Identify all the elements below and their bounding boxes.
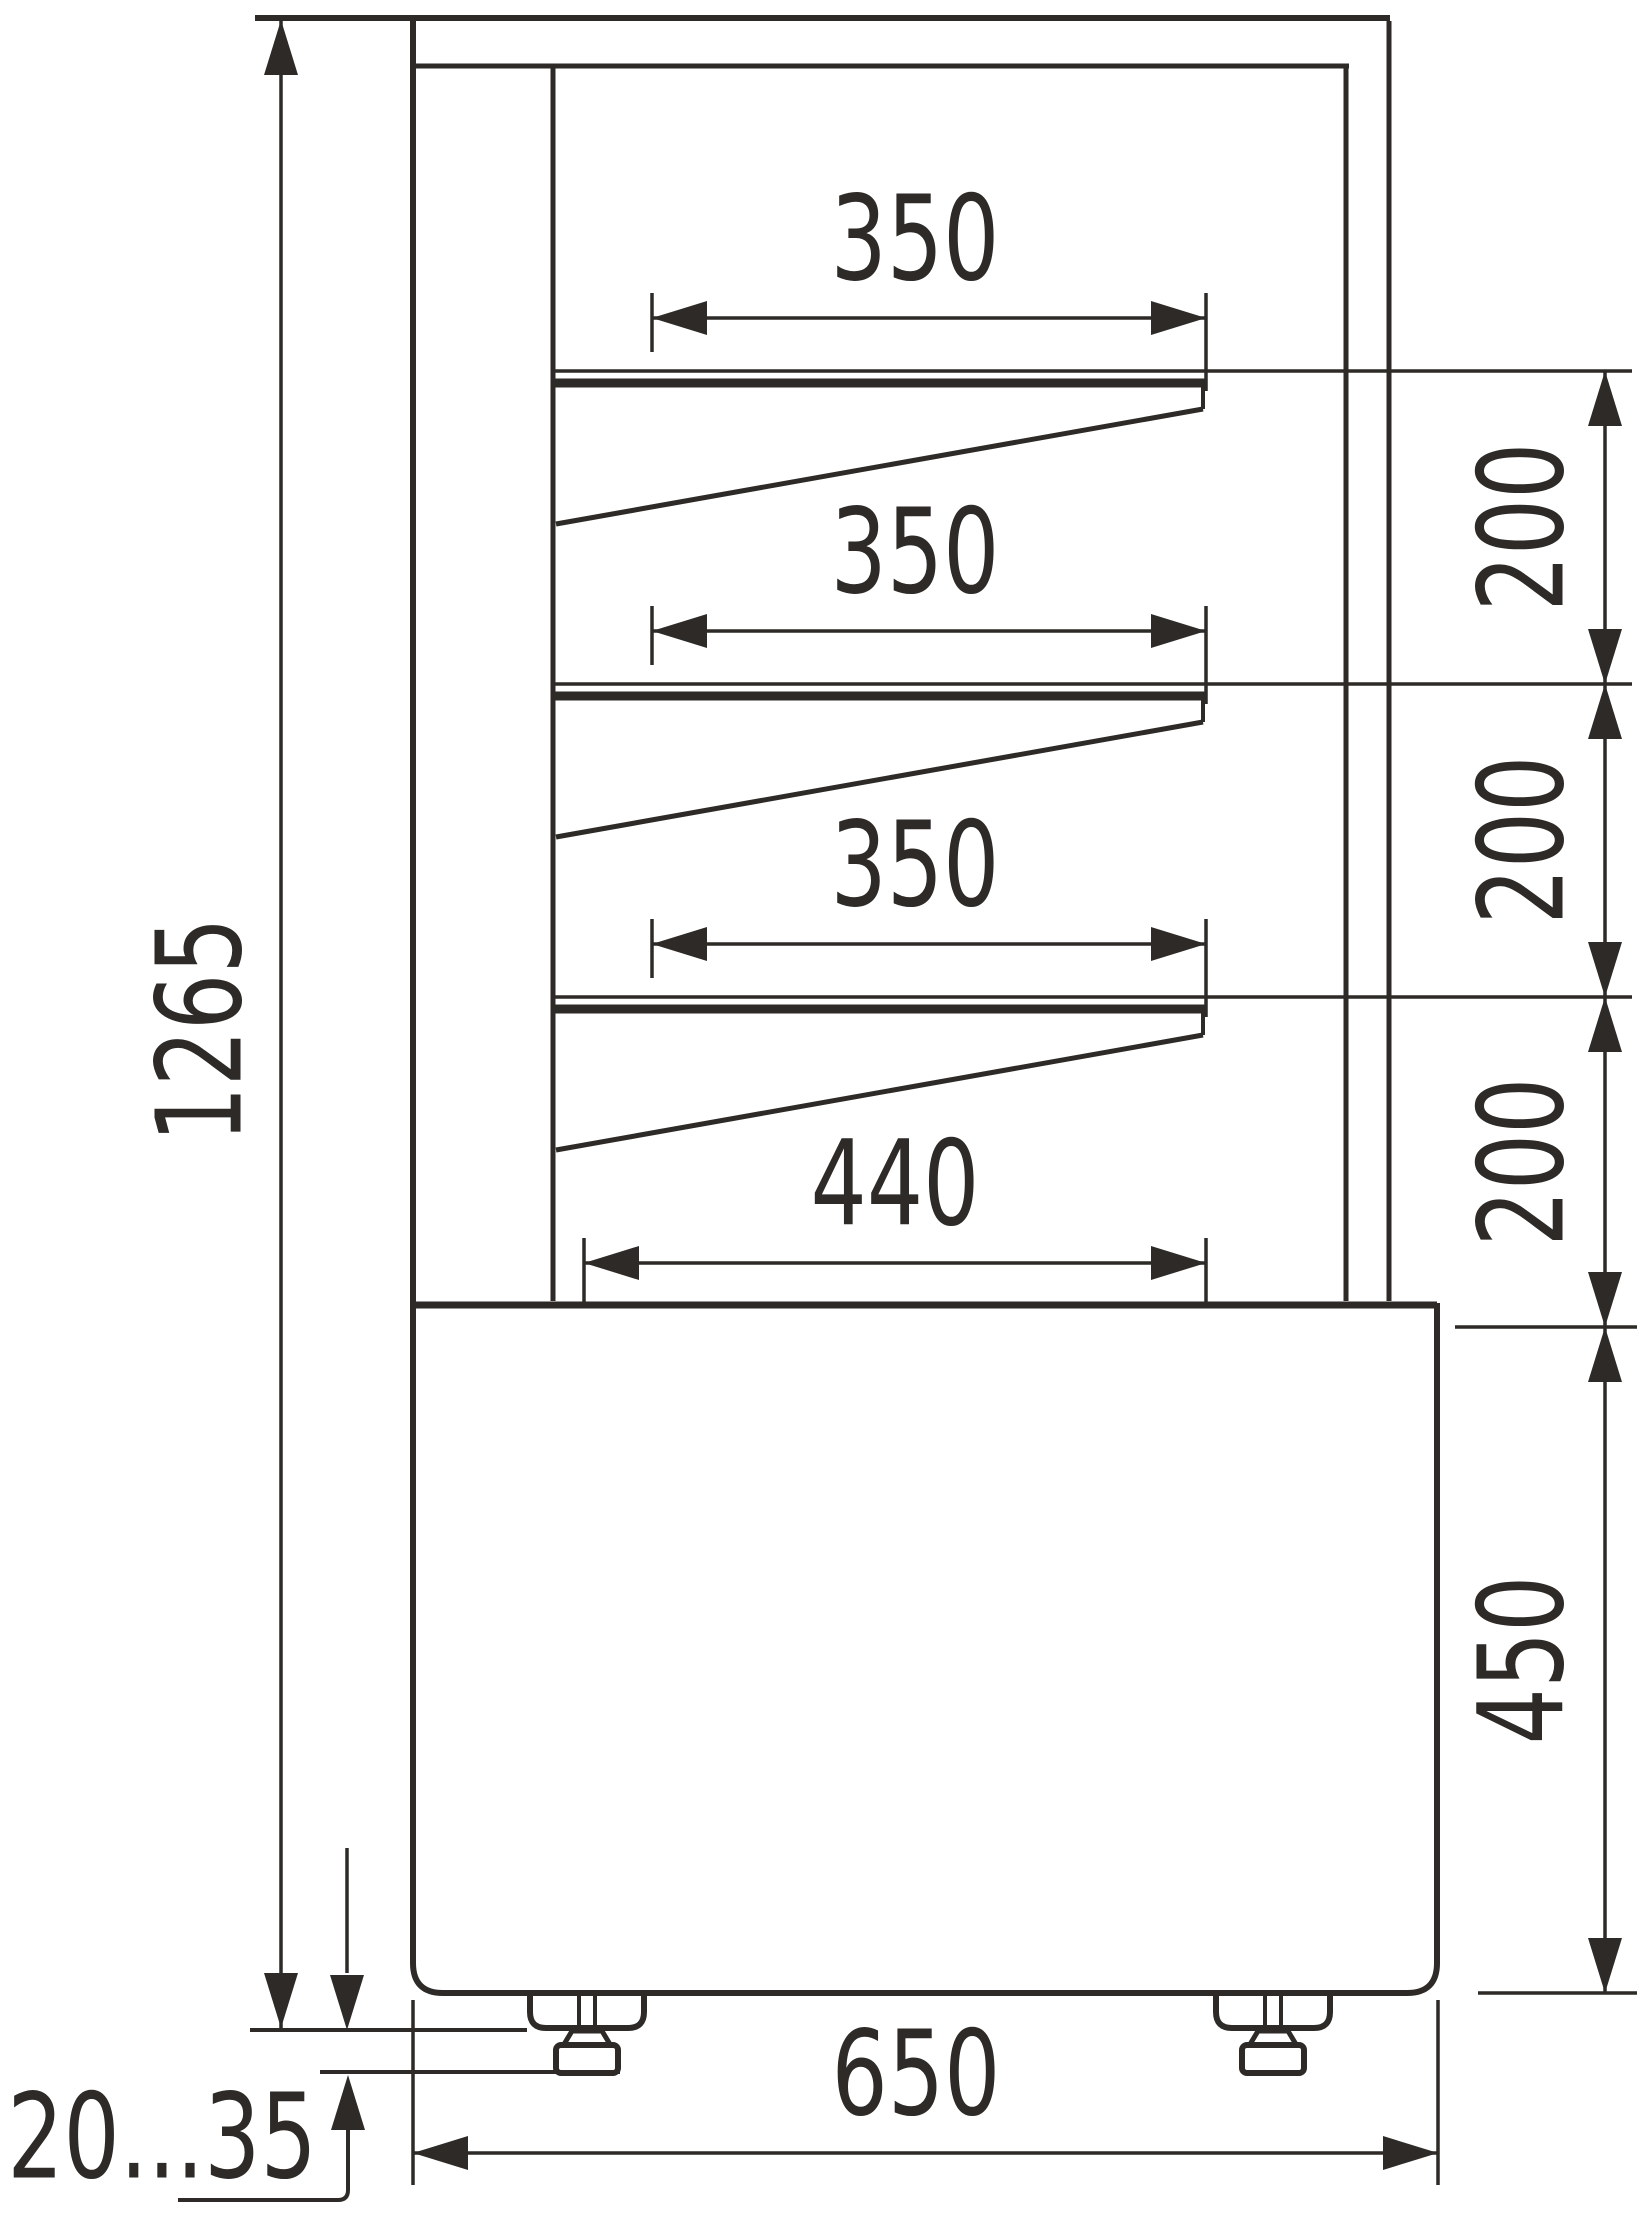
arrowhead-right-icon	[1151, 1246, 1206, 1280]
dim-base-height-label: 450	[1453, 1576, 1591, 1745]
arrowhead-up-icon	[1588, 1327, 1622, 1382]
dim-shelf-3-label: 350	[831, 796, 1000, 934]
arrowhead-up-icon	[331, 2075, 365, 2130]
arrowhead-left-icon	[652, 927, 707, 961]
dim-base-width-label: 650	[832, 2005, 1001, 2143]
dim-base-height: 450	[1453, 1327, 1622, 1993]
arrowhead-up-icon	[1588, 997, 1622, 1052]
arrowhead-left-icon	[652, 301, 707, 335]
dim-gap-1: 200	[1453, 371, 1622, 684]
arrowhead-down-icon	[1588, 942, 1622, 997]
dim-gap-1-label: 200	[1453, 443, 1591, 612]
dim-shelf-3-width: 350	[652, 796, 1206, 1017]
foot-left-pad	[556, 2045, 618, 2073]
dim-gap-2-label: 200	[1453, 756, 1591, 925]
dim-overall-height: 1265	[131, 20, 298, 2028]
dim-feet-range: 20...35	[7, 1848, 365, 2206]
arrowhead-left-icon	[652, 614, 707, 648]
arrowhead-up-icon	[1588, 371, 1622, 426]
arrowhead-down-icon	[1588, 1272, 1622, 1327]
dim-shelf-2-width: 350	[652, 483, 1206, 704]
drawing-page: 1265 350 350 350 440	[0, 0, 1650, 2218]
arrowhead-down-icon	[1588, 1938, 1622, 1993]
arrowhead-down-icon	[330, 1975, 364, 2030]
dim-gap-3-label: 200	[1453, 1078, 1591, 1247]
dim-shelf-1-label: 350	[831, 170, 1000, 308]
dim-overall-height-label: 1265	[131, 917, 269, 1142]
arrowhead-right-icon	[1383, 2136, 1438, 2170]
arrowhead-down-icon	[1588, 629, 1622, 684]
dim-bottom-shelf-label: 440	[811, 1115, 980, 1253]
dim-bottom-shelf-width: 440	[584, 1115, 1206, 1303]
arrowhead-down-icon	[264, 1973, 298, 2028]
arrowhead-right-icon	[1151, 927, 1206, 961]
foot-right	[1216, 1990, 1330, 2073]
dim-shelf-1-width: 350	[652, 170, 1206, 391]
arrowhead-right-icon	[1151, 301, 1206, 335]
dim-shelf-2-label: 350	[831, 483, 1000, 621]
arrowhead-left-icon	[413, 2136, 468, 2170]
dim-feet-range-label: 20...35	[7, 2068, 317, 2206]
technical-drawing: 1265 350 350 350 440	[0, 0, 1650, 2218]
dim-gap-2: 200	[1453, 684, 1622, 997]
arrowhead-up-icon	[264, 20, 298, 75]
arrowhead-up-icon	[1588, 684, 1622, 739]
arrowhead-right-icon	[1151, 614, 1206, 648]
dim-gap-3: 200	[1453, 997, 1622, 1327]
arrowhead-left-icon	[584, 1246, 639, 1280]
foot-left	[530, 1990, 644, 2073]
foot-right-pad	[1242, 2045, 1304, 2073]
